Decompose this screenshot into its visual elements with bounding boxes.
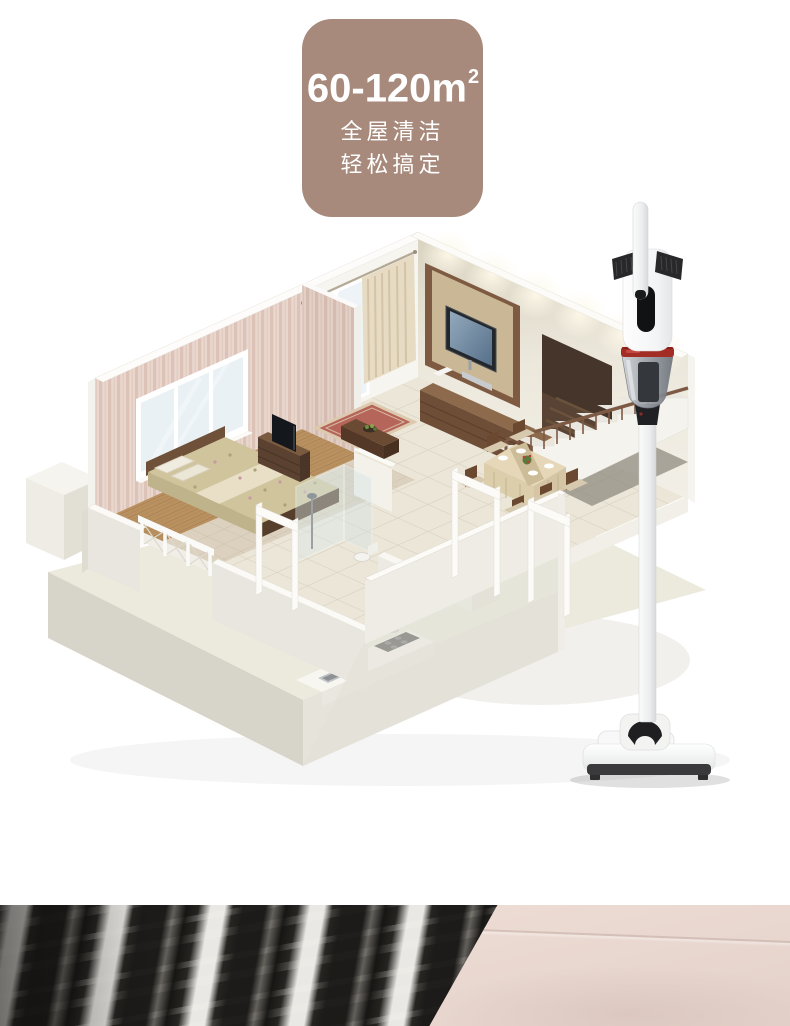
vacuum-pole — [639, 420, 656, 722]
toilet — [354, 553, 370, 562]
badge-tagline-1: 全屋清洁 — [302, 116, 483, 147]
badge-tagline-2: 轻松搞定 — [302, 149, 483, 180]
plaid-fabric-photo — [0, 905, 505, 1026]
footer-photo-strip — [0, 905, 790, 1026]
shower-head — [307, 493, 317, 499]
table-centerpiece — [523, 455, 532, 465]
area-badge: 60-120m2 全屋清洁 轻松搞定 — [302, 19, 483, 217]
vacuum-wand-handle — [633, 202, 648, 299]
fabric-seam — [470, 929, 790, 944]
area-value: 60-120m2 — [302, 59, 483, 110]
fabric-shading — [430, 965, 790, 1026]
square-meter-sup: 2 — [468, 66, 479, 88]
